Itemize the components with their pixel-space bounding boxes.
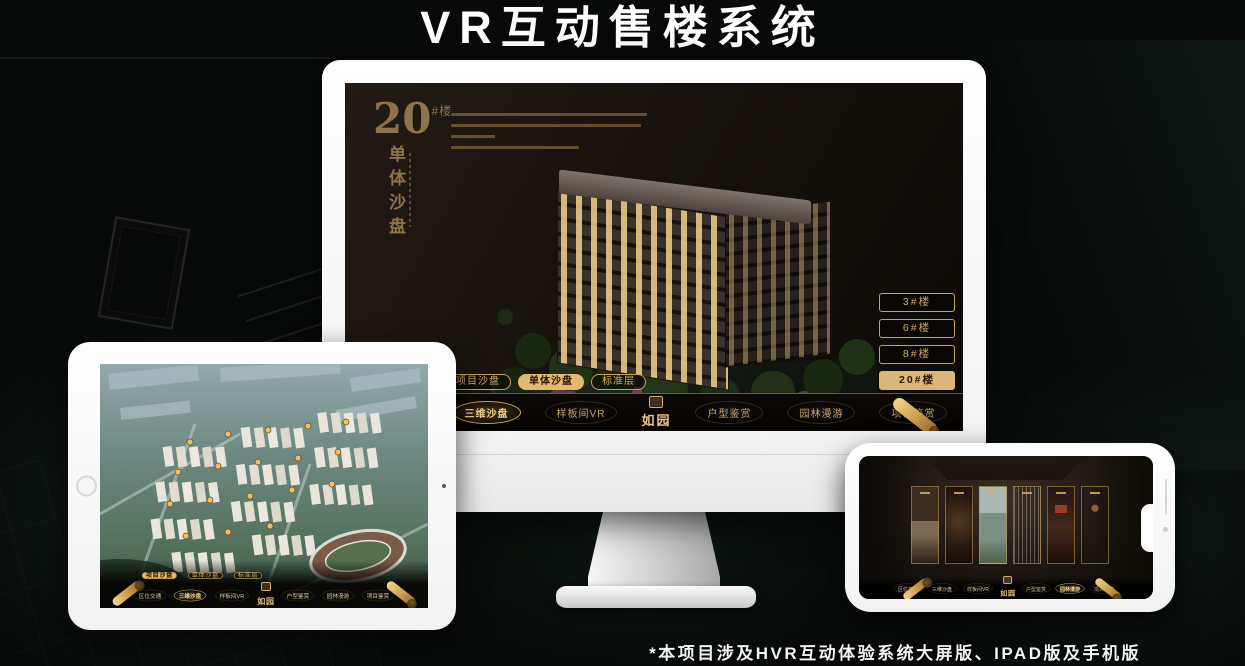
tablet-bottom-nav-bar: 区位交通 三维沙盘 样板间VR 如园 户型鉴赏 园林漫游 项目鉴赏 [100,583,428,607]
floor-button-3[interactable]: 3#楼 [879,293,955,312]
block-subtitle: 单体沙盘 [383,145,408,241]
scene-card-gallery [911,486,1109,564]
scene-card-2[interactable] [945,486,973,564]
floor-button-group: 3#楼 6#楼 8#楼 20#楼 [879,293,955,390]
tablet-screen: 项目沙盘 单体沙盘 标准层 区位交通 三维沙盘 样板间VR 如园 户型鉴赏 园林… [100,364,428,608]
block-number-suffix: #楼 [431,104,452,118]
floor-button-8[interactable]: 8#楼 [879,345,955,364]
phone-nav-item-showroom-vr[interactable]: 样板间VR [963,583,994,594]
tablet-nav-item-showroom-vr[interactable]: 样板间VR [215,589,250,601]
phone-screen: 区位交通 三维沙盘 样板间VR 如园 户型鉴赏 园林漫游 项目鉴赏 [859,456,1153,599]
phone-camera-dot [1163,527,1168,532]
background-plaque [98,216,191,330]
background-building-texture [960,40,1245,470]
floor-button-6[interactable]: 6#楼 [879,319,955,338]
footnote-text: *本项目涉及HVR互动体验系统大屏版、IPAD版及手机版 [649,639,1141,664]
tablet-nav-overlay: 项目沙盘 单体沙盘 标准层 区位交通 三维沙盘 样板间VR 如园 户型鉴赏 园林… [100,560,428,608]
phone-nav-item-unit-plans[interactable]: 户型鉴赏 [1021,583,1050,594]
tablet-camera-dot [442,484,446,488]
seal-icon [1003,576,1012,584]
floor-button-20-selected[interactable]: 20#楼 [879,371,955,390]
building-front-face [557,189,729,390]
seal-icon [261,582,271,591]
building-side-face [725,200,831,367]
nav-item-showroom-vr[interactable]: 样板间VR [545,401,618,424]
building-3d-render[interactable] [463,159,903,431]
tablet-nav-item-project-view[interactable]: 项目鉴赏 [362,589,394,601]
brand-logo-text: 如园 [641,410,671,429]
description-text-lines [451,105,647,157]
monitor-stand-neck [588,508,720,592]
nav-item-garden-roam[interactable]: 园林漫游 [787,401,855,424]
tablet-tab-standard-floor[interactable]: 标准层 [234,572,262,579]
page-title: VR互动售楼系统 [0,0,1245,56]
background-edge-line [0,57,330,59]
seal-icon [649,396,663,408]
tablet-home-button[interactable] [76,476,97,497]
scene-card-4[interactable] [1013,486,1041,564]
brand-logo: 如园 [641,396,671,429]
phone-nav-item-garden-roam-selected[interactable]: 园林漫游 [1055,583,1084,594]
tablet-brand-logo: 如园 [255,582,277,608]
nav-item-3d-sandtable-selected[interactable]: 三维沙盘 [453,401,521,424]
block-headline: 20#楼 单体沙盘 [373,97,452,241]
sub-tab-group: 项目沙盘 单体沙盘 标准层 [445,374,646,390]
vertical-english-caption [409,153,411,227]
tablet-nav-item-3d-sandtable-selected[interactable]: 三维沙盘 [174,589,206,601]
scene-card-3[interactable] [979,486,1007,564]
nav-item-unit-plans[interactable]: 户型鉴赏 [695,401,763,424]
phone-speaker-slit [1165,479,1167,515]
scene-card-6[interactable] [1081,486,1109,564]
phone-brand-logo: 如园 [997,576,1019,599]
page: VR互动售楼系统 20#楼 单体沙盘 3#楼 6#楼 8 [0,0,1245,666]
tablet-tab-project-sandtable-selected[interactable]: 项目沙盘 [142,572,177,579]
tab-single-sandtable-selected[interactable]: 单体沙盘 [518,374,584,390]
interior-roof-beam [925,456,1085,480]
tablet-nav-item-unit-plans[interactable]: 户型鉴赏 [282,589,314,601]
scene-card-5[interactable] [1047,486,1075,564]
tablet-frame: 项目沙盘 单体沙盘 标准层 区位交通 三维沙盘 样板间VR 如园 户型鉴赏 园林… [68,342,456,630]
phone-frame: 区位交通 三维沙盘 样板间VR 如园 户型鉴赏 园林漫游 项目鉴赏 [845,443,1175,612]
tablet-sub-tab-group: 项目沙盘 单体沙盘 标准层 [142,570,265,581]
tablet-brand-logo-text: 如园 [257,595,275,607]
tablet-tab-single-sandtable[interactable]: 单体沙盘 [188,572,223,579]
monitor-stand-base [556,586,756,608]
block-number: 20 [373,94,431,143]
tablet-nav-item-garden-roam[interactable]: 园林漫游 [322,589,354,601]
landscape-trees [497,309,513,325]
tab-standard-floor[interactable]: 标准层 [591,374,646,390]
phone-notch [1141,504,1153,552]
scene-card-1[interactable] [911,486,939,564]
phone-brand-logo-text: 如园 [1000,587,1015,598]
